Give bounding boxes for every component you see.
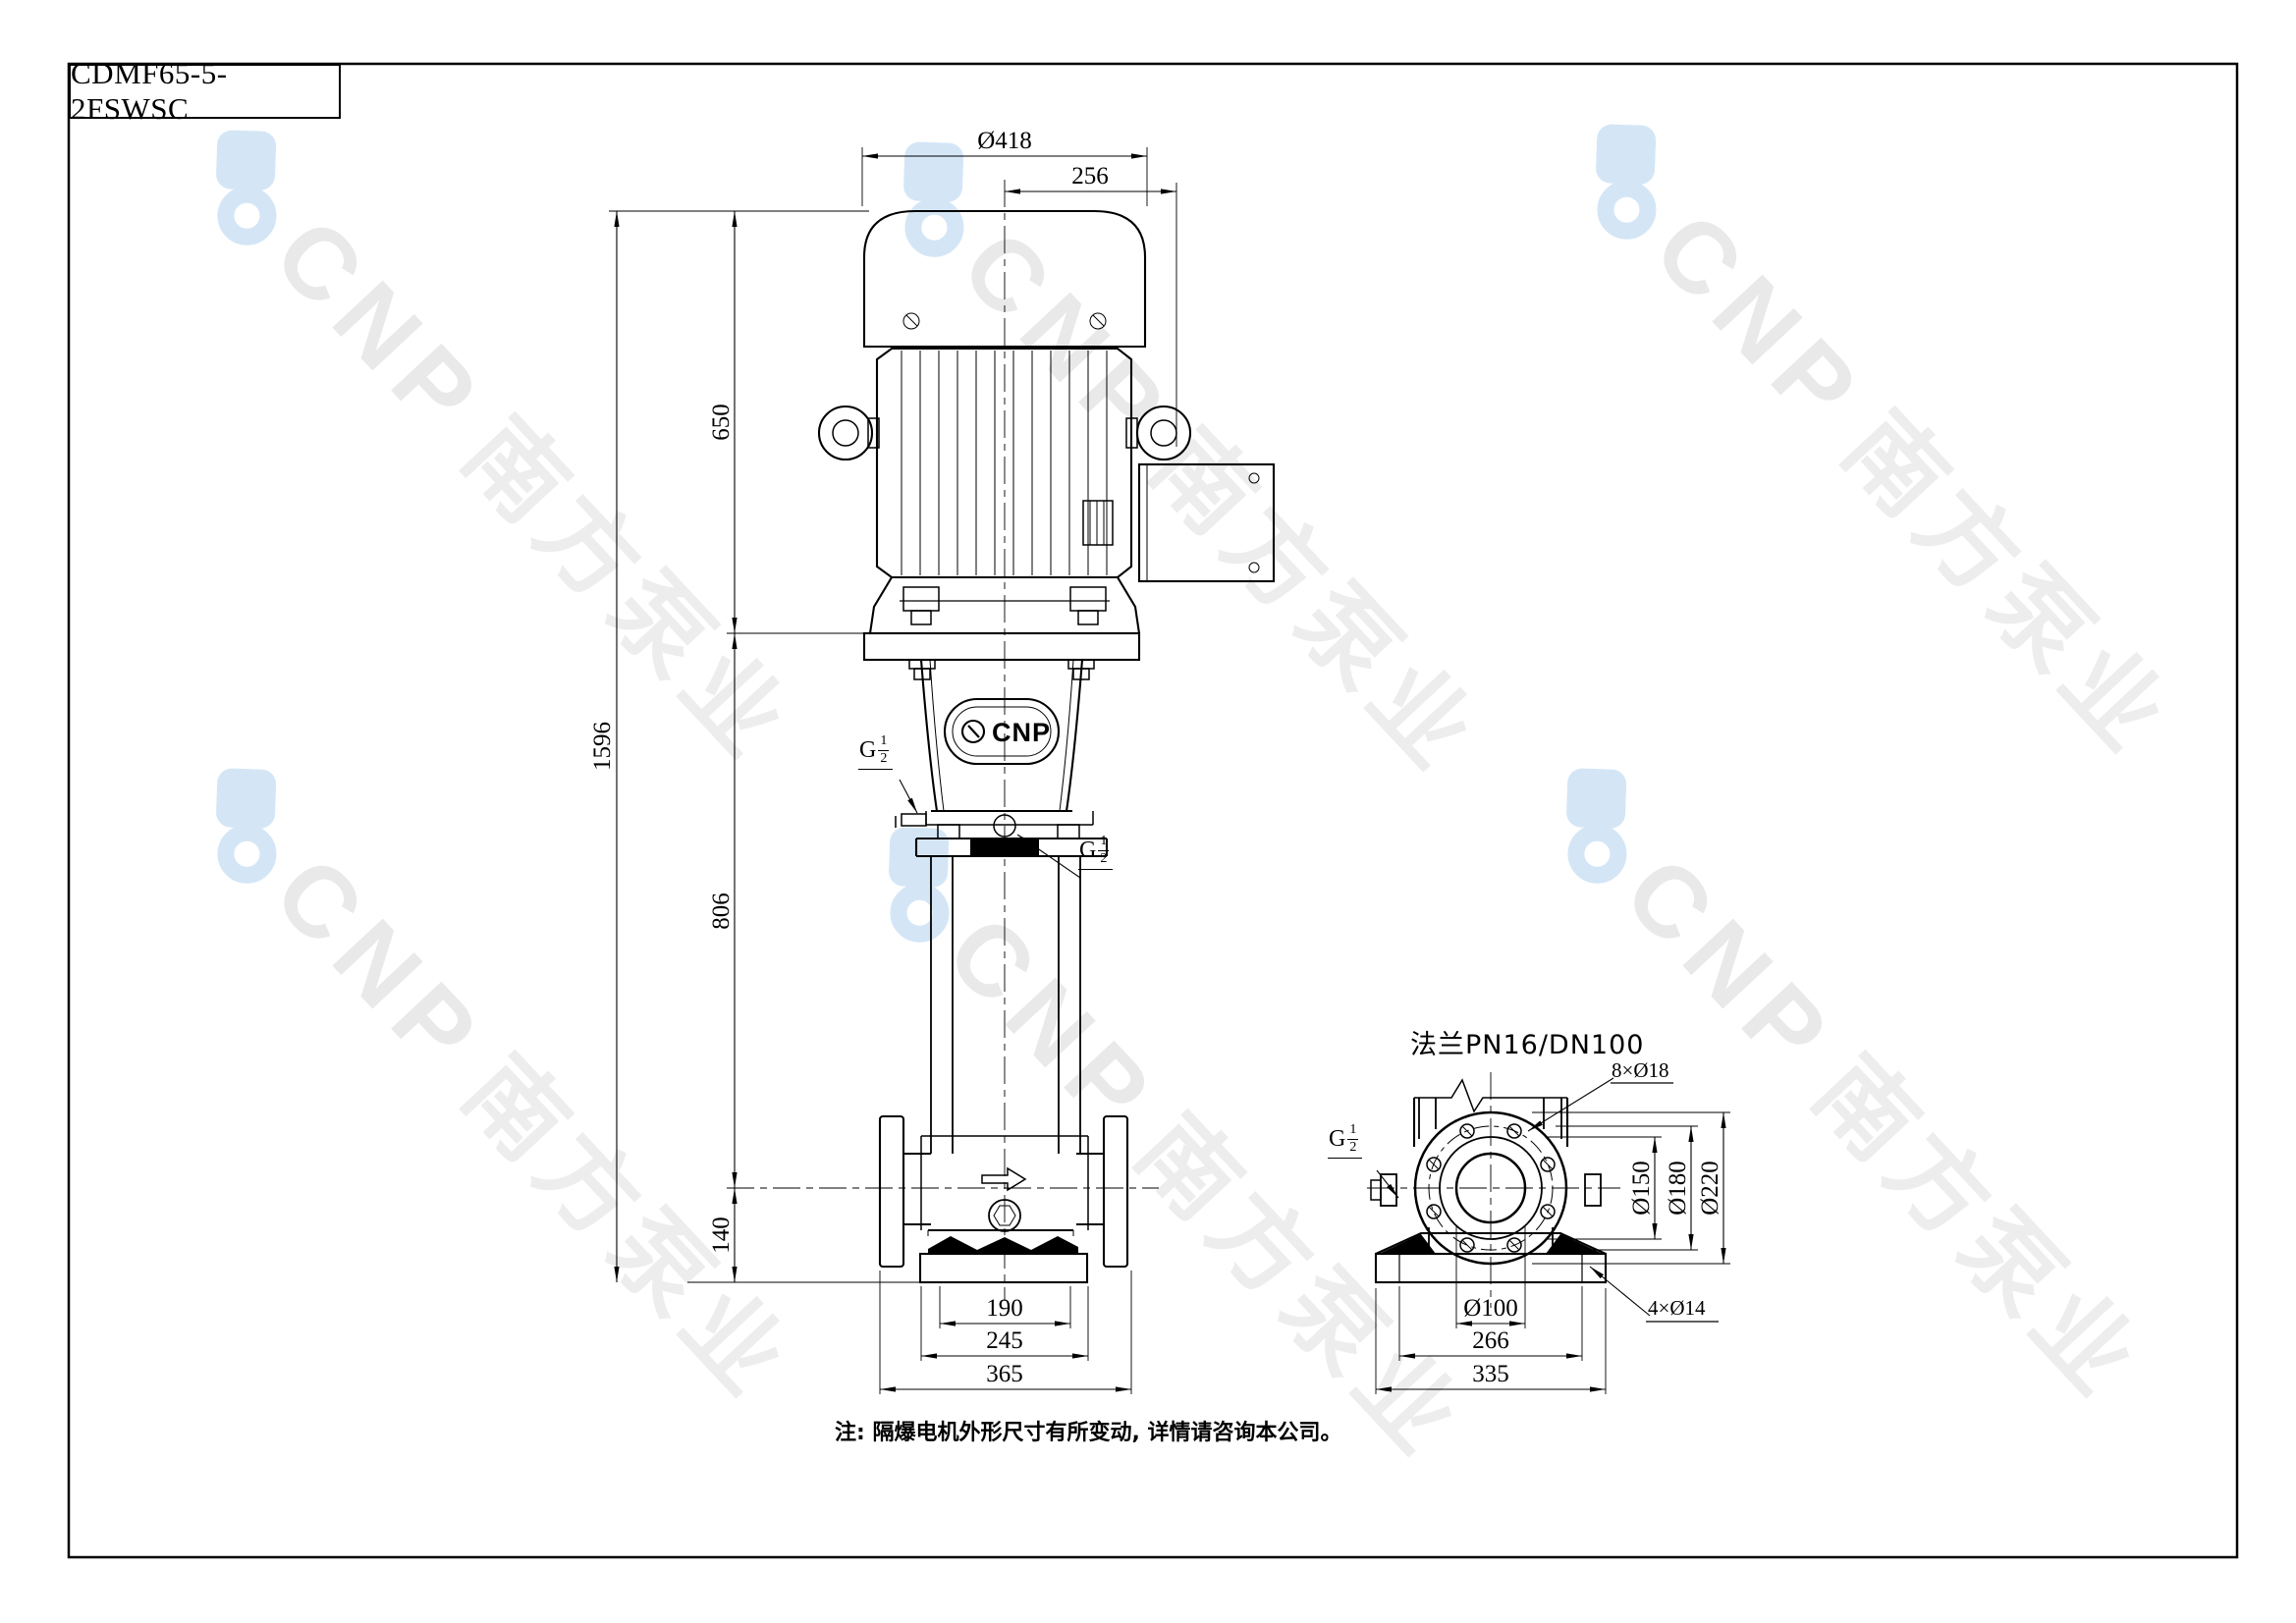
flange-spec-title: 法兰PN16/DN100 xyxy=(1410,1023,1644,1061)
lifting-eye-left xyxy=(819,406,872,460)
pump-base-front xyxy=(920,1254,1087,1282)
callout-foot-holes: 4×Ø14 xyxy=(1648,1296,1706,1320)
model-number: CDMF65-5-2FSWSC xyxy=(71,56,339,127)
dim-motor-od: Ø418 xyxy=(977,128,1032,154)
vent-plug xyxy=(902,814,926,826)
dim-base-inner-width: 190 xyxy=(986,1295,1023,1322)
flow-arrow-icon xyxy=(982,1168,1025,1190)
lantern-front-view: CNP xyxy=(896,660,1107,856)
suction-flange xyxy=(880,1116,903,1267)
flange-side-view xyxy=(1371,1080,1606,1282)
drawing-note: 注: 隔爆电机外形尺寸有所变动, 详情请咨询本公司。 xyxy=(835,1415,1341,1446)
title-block: CDMF65-5-2FSWSC xyxy=(69,64,341,119)
dim-total-height: 1596 xyxy=(589,722,616,771)
finned-motor-body xyxy=(877,349,1131,577)
motor-front-view xyxy=(819,211,1274,660)
pump-lower-front-view xyxy=(880,856,1127,1282)
dim-port-height: 140 xyxy=(708,1217,735,1254)
drawing-sheet: CNP 南方泵业 CNP 南方泵业 CNP 南方泵业 CNP 南方泵业 CNP … xyxy=(0,0,2296,1623)
dim-bolt-circle: Ø180 xyxy=(1665,1161,1691,1216)
motor-foot-plate xyxy=(864,633,1139,660)
dim-base-outer-width: 245 xyxy=(986,1327,1023,1354)
plug-label-g-half-gauge: G 1 2 xyxy=(1078,835,1113,870)
callout-bolt-holes: 8×Ø18 xyxy=(1612,1058,1669,1082)
lifting-eye-right xyxy=(1137,406,1190,460)
fraction: 1 2 xyxy=(1098,835,1109,867)
side-view-dimensions: Ø150 Ø180 Ø220 Ø100 266 335 8×Ø18 4×Ø14 xyxy=(1376,1058,1730,1394)
dim-flange-od: Ø220 xyxy=(1697,1161,1723,1216)
fraction: 1 2 xyxy=(1347,1123,1358,1156)
dim-pump-height: 806 xyxy=(708,893,735,930)
dim-base-width: 335 xyxy=(1472,1361,1509,1387)
fraction: 1 2 xyxy=(878,734,889,767)
plug-label-g-half-side: G 1 2 xyxy=(1328,1123,1362,1159)
sheet-border xyxy=(69,64,2237,1557)
dim-motor-height: 650 xyxy=(708,404,735,441)
dim-port-span: 266 xyxy=(1472,1327,1509,1354)
column-pipes xyxy=(931,856,1080,1154)
side-plug xyxy=(1371,1180,1381,1200)
dim-raised-face: Ø150 xyxy=(1628,1161,1655,1216)
pump-dimension-drawing: CNP xyxy=(0,0,2296,1623)
dim-terminal-offset: 256 xyxy=(1071,163,1109,189)
plug-label-g-half-vent: G 1 2 xyxy=(858,734,893,770)
terminal-box xyxy=(1139,464,1274,581)
discharge-flange xyxy=(1104,1116,1127,1267)
badge-text: CNP xyxy=(992,718,1051,747)
dim-bore: Ø100 xyxy=(1463,1295,1518,1322)
dim-flange-span: 365 xyxy=(986,1361,1023,1387)
